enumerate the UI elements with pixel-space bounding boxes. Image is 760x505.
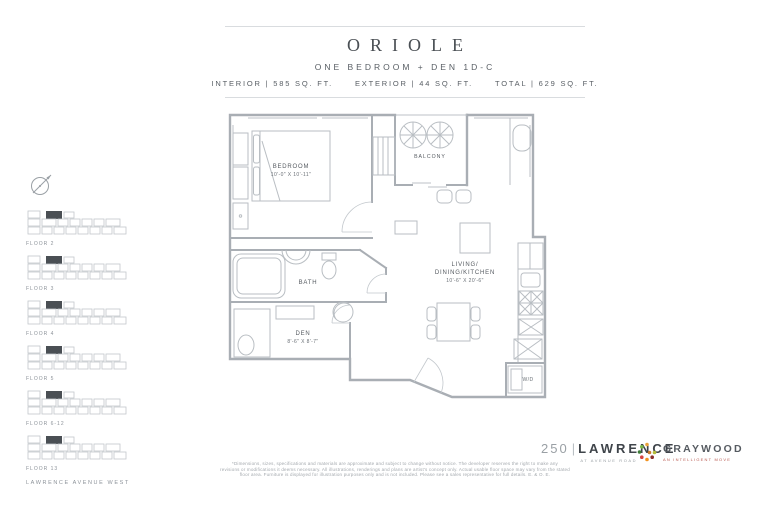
balcony-planters bbox=[400, 122, 453, 148]
bedroom-label: BEDROOM bbox=[273, 164, 310, 170]
developer-name: GRAYWOOD bbox=[663, 443, 744, 455]
keyplan-label: FLOOR 2 bbox=[26, 241, 156, 247]
keyplan-diagram bbox=[26, 299, 130, 325]
keyplan-item: FLOOR 5 bbox=[26, 344, 156, 382]
keyplan-sidebar: FLOOR 2 bbox=[26, 170, 156, 486]
floorplan-svg: BEDROOM 10'-0" X 10'-11" BATH DEN 8'-6" … bbox=[222, 106, 574, 418]
bottom-divider bbox=[225, 97, 585, 98]
keyplan-item: FLOOR 4 bbox=[26, 299, 156, 337]
bath-label: BATH bbox=[299, 280, 318, 286]
page-title: ORIOLE bbox=[210, 35, 610, 56]
floorplan-drawing: BEDROOM 10'-0" X 10'-11" BATH DEN 8'-6" … bbox=[222, 106, 574, 418]
den-label: DEN bbox=[295, 331, 310, 337]
balcony-label: BALCONY bbox=[414, 154, 446, 160]
unit-subtitle: ONE BEDROOM + DEN 1D-C bbox=[200, 62, 610, 72]
graywood-icon bbox=[637, 442, 657, 462]
logo-divider: | bbox=[572, 441, 575, 456]
kitchen-counters bbox=[510, 118, 543, 362]
stat-exterior: EXTERIOR | 44 SQ. FT. bbox=[355, 79, 473, 88]
keyplan-label: FLOOR 3 bbox=[26, 286, 156, 292]
hall-closet bbox=[373, 137, 395, 175]
living-dims: 10'-6" X 20'-6" bbox=[446, 278, 484, 284]
street-label: LAWRENCE AVENUE WEST bbox=[26, 480, 156, 486]
keyplan-label: FLOOR 6-12 bbox=[26, 421, 156, 427]
living-label-1: LIVING/ bbox=[452, 262, 479, 268]
den-dims: 8'-6" X 8'-7" bbox=[287, 339, 318, 345]
area-stats: INTERIOR | 585 SQ. FT. EXTERIOR | 44 SQ.… bbox=[200, 79, 610, 88]
keyplan-item: FLOOR 2 bbox=[26, 209, 156, 247]
stat-total: TOTAL | 629 SQ. FT. bbox=[495, 79, 599, 88]
den-furniture bbox=[234, 302, 353, 357]
keyplan-diagram bbox=[26, 434, 130, 460]
keyplan-label: FLOOR 4 bbox=[26, 331, 156, 337]
header: ORIOLE ONE BEDROOM + DEN 1D-C INTERIOR |… bbox=[200, 26, 610, 98]
keyplan-label: FLOOR 13 bbox=[26, 466, 156, 472]
floorplan-page: ORIOLE ONE BEDROOM + DEN 1D-C INTERIOR |… bbox=[0, 0, 760, 505]
keyplan-diagram bbox=[26, 344, 130, 370]
stat-interior: INTERIOR | 585 SQ. FT. bbox=[212, 79, 334, 88]
bedroom-dims: 10'-0" X 10'-11" bbox=[271, 172, 311, 178]
project-number: 250 bbox=[541, 441, 569, 456]
developer-tagline: AN INTELLIGENT MOVE bbox=[663, 457, 744, 462]
interior-walls bbox=[230, 115, 543, 397]
wd-label: W/D bbox=[523, 377, 534, 383]
disclaimer-line-3: floor area. Furniture is displayed for i… bbox=[175, 472, 615, 478]
keyplan-diagram bbox=[26, 254, 130, 280]
door-arcs bbox=[332, 202, 443, 393]
keyplan-diagram bbox=[26, 389, 130, 415]
legal-disclaimer: *Dimensions, sizes, specifications and m… bbox=[175, 461, 615, 478]
keyplan-list: FLOOR 2 bbox=[26, 209, 156, 472]
living-label-2: DINING/KITCHEN bbox=[435, 270, 495, 276]
keyplan-item: FLOOR 3 bbox=[26, 254, 156, 292]
keyplan-item: FLOOR 13 bbox=[26, 434, 156, 472]
keyplan-label: FLOOR 5 bbox=[26, 376, 156, 382]
north-arrow-icon bbox=[28, 170, 58, 198]
top-divider bbox=[225, 26, 585, 27]
developer-logo: GRAYWOOD AN INTELLIGENT MOVE bbox=[637, 442, 744, 462]
keyplan-diagram bbox=[26, 209, 130, 235]
keyplan-item: FLOOR 6-12 bbox=[26, 389, 156, 427]
bath-fixtures bbox=[233, 250, 336, 298]
bedroom-furniture bbox=[233, 131, 330, 229]
